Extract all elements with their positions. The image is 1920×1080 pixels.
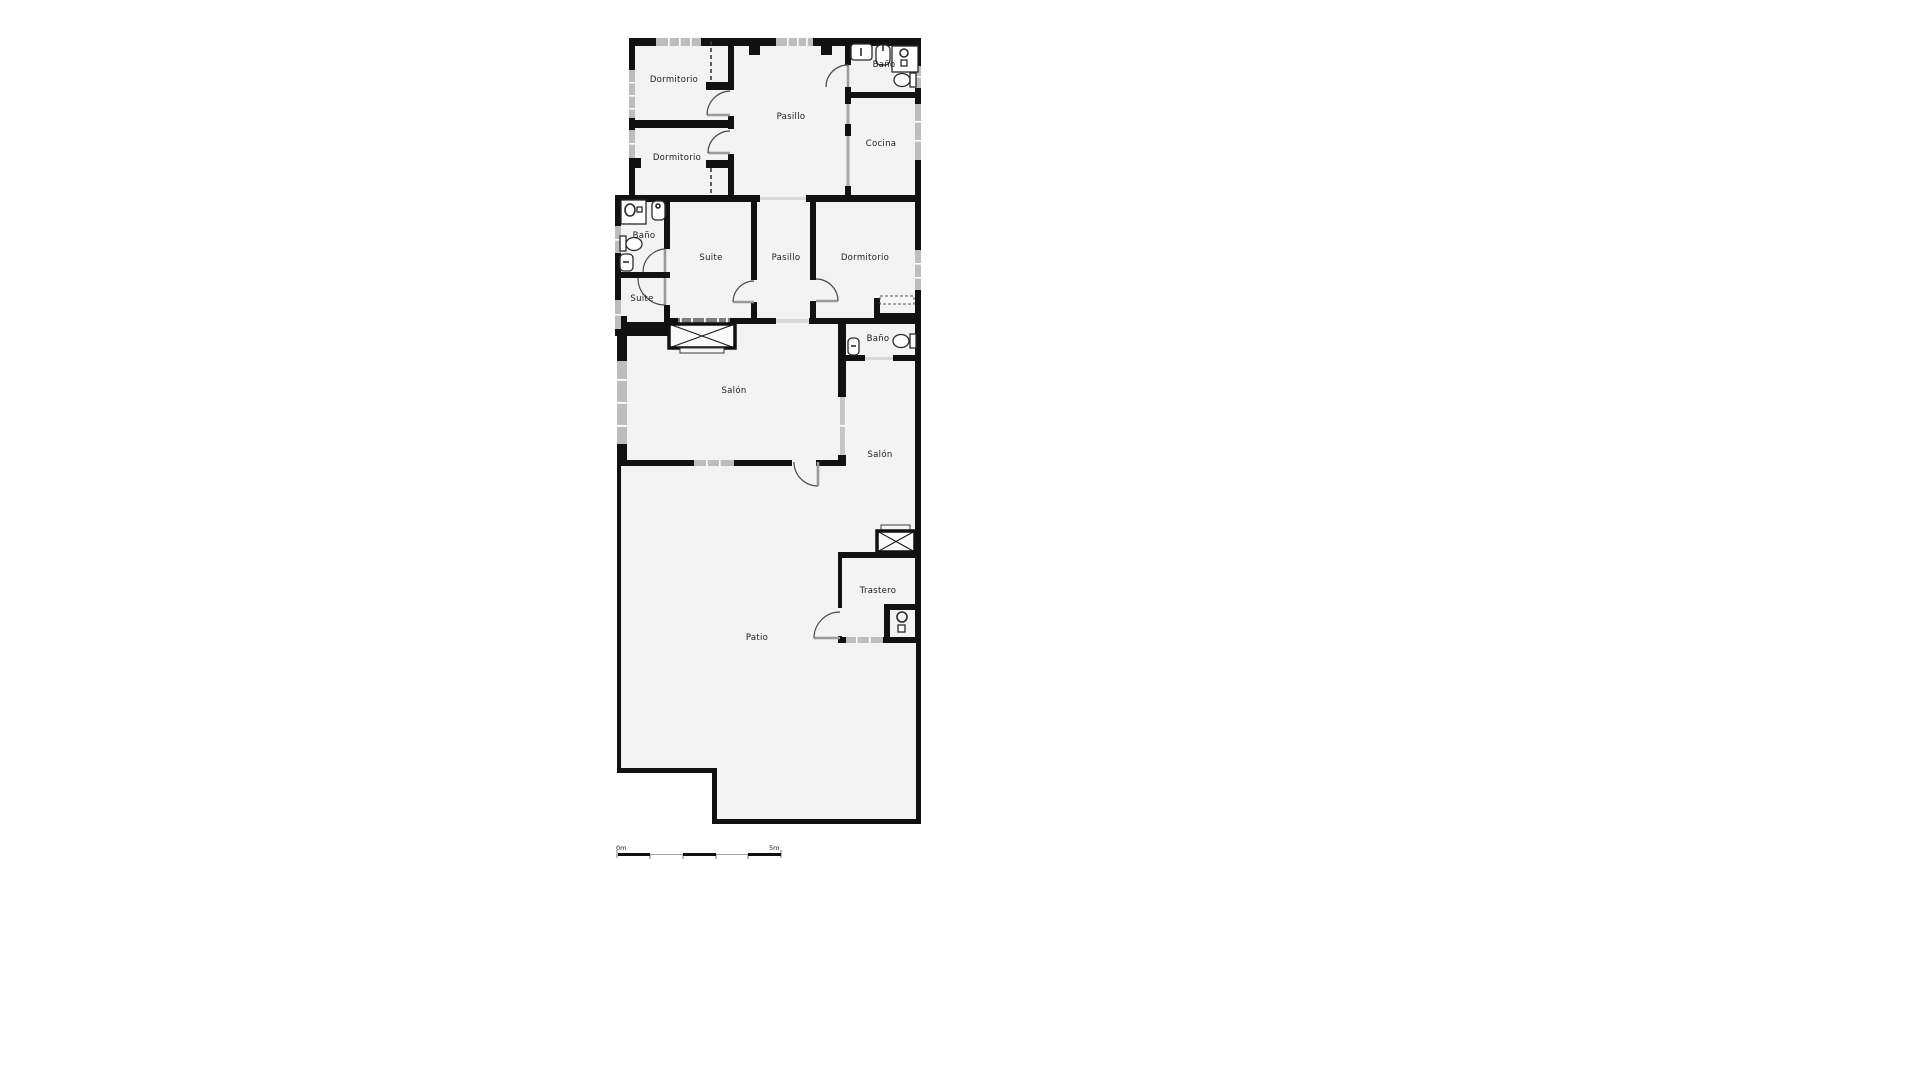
- room-label-dormitorio-2: Dormitorio: [653, 153, 701, 163]
- room-label-suite-small: Suite: [630, 294, 653, 304]
- window-cocina-right: [915, 104, 921, 160]
- toilet-icon: [893, 334, 916, 348]
- scale-segment: [618, 853, 650, 856]
- room-label-trastero: Trastero: [859, 586, 897, 596]
- window-salon-left: [617, 361, 627, 444]
- window-dormitorio1-top: [656, 38, 701, 46]
- room-label-bano-top: Baño: [873, 60, 896, 70]
- toilet-icon: [894, 73, 916, 87]
- window-suite-small-left: [615, 300, 621, 329]
- scale-end-label: 5m: [769, 844, 779, 852]
- scale-segment: [748, 853, 781, 856]
- room-label-pasillo-top: Pasillo: [777, 112, 806, 122]
- drain-icon: [898, 625, 905, 632]
- wardrobe-x-box-salon: [669, 324, 735, 353]
- scale-start-label: 0m: [616, 844, 626, 852]
- floor-plan: Dormitorio Dormitorio Pasillo Baño Cocin…: [0, 0, 1920, 1080]
- room-label-bano-left: Baño: [633, 231, 656, 241]
- floor-plan-canvas: Dormitorio Dormitorio Pasillo Baño Cocin…: [0, 0, 1920, 1080]
- opening-pasillo-threshold: [760, 197, 806, 200]
- glazed-partition-cocina: [846, 104, 850, 186]
- room-label-suite: Suite: [699, 253, 722, 263]
- room-label-dormitorio-1: Dormitorio: [650, 75, 698, 85]
- window-trastero-bottom: [846, 637, 883, 643]
- scale-bar: 0m 5m: [616, 844, 781, 859]
- window-pasillo-top: [776, 38, 813, 46]
- room-label-salon: Salón: [721, 385, 746, 396]
- room-label-bano-right: Baño: [867, 334, 890, 344]
- window-dormitorio2-left: [629, 130, 635, 158]
- opening-bano-salon: [865, 357, 893, 360]
- window-salon-bottom: [694, 460, 734, 466]
- trastero-fill: [838, 552, 921, 643]
- wardrobe-x-box-salon-right: [877, 525, 915, 552]
- opening-pasillo-salon: [776, 319, 809, 323]
- scale-segment: [683, 853, 716, 856]
- window-dormitorio1-left: [629, 70, 635, 118]
- room-label-salon-right: Salón: [867, 449, 892, 460]
- room-label-pasillo-mid: Pasillo: [772, 253, 801, 263]
- room-label-dormitorio-3: Dormitorio: [841, 253, 889, 263]
- window-dormitorio3-right: [915, 250, 921, 290]
- room-label-cocina: Cocina: [866, 139, 897, 149]
- closet-dashed-icon: [880, 296, 914, 304]
- window-salon-right-partition: [840, 397, 845, 455]
- room-label-patio: Patio: [746, 633, 768, 643]
